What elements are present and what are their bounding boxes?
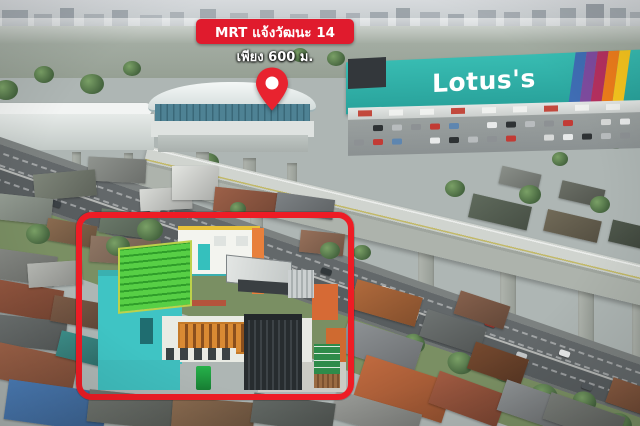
parked-car: [544, 120, 554, 126]
location-pin-icon: [253, 66, 291, 112]
shop-sign: [513, 106, 527, 112]
parked-car: [563, 120, 573, 126]
tree: [34, 66, 54, 83]
skyline-building: [396, 8, 410, 28]
lotus-sign-text: Lotus's: [432, 64, 536, 98]
shop-sign: [358, 110, 372, 116]
parked-car: [582, 133, 592, 139]
roof: [608, 220, 640, 253]
parked-car: [373, 139, 383, 145]
parked-car: [487, 122, 497, 128]
shop-sign: [482, 107, 496, 113]
parked-car: [620, 118, 630, 124]
parked-car: [525, 121, 535, 127]
skyline-building: [560, 8, 576, 28]
parking-lot: [348, 112, 640, 156]
aerial-photo: Lotus's MRT แจ้งวัฒนะ 14 เพียง 600 ม.: [0, 0, 640, 426]
roof: [543, 209, 602, 243]
parked-car: [430, 123, 440, 129]
parked-car: [468, 136, 478, 142]
parked-car: [601, 133, 611, 139]
tree: [552, 152, 568, 166]
parked-car: [601, 119, 611, 125]
roof: [27, 260, 83, 288]
station-concourse: [158, 135, 308, 152]
parked-car: [449, 123, 459, 129]
shop-sign: [420, 109, 434, 115]
parked-car: [449, 137, 459, 143]
parked-car: [506, 121, 516, 127]
distance-label: เพียง 600 ม.: [176, 46, 374, 67]
parked-car: [392, 124, 402, 130]
parked-car: [544, 134, 554, 140]
tree: [519, 185, 541, 204]
roof: [172, 166, 218, 200]
roof: [33, 169, 97, 200]
lotus-brand-stripes: [572, 50, 630, 105]
tree: [0, 80, 18, 100]
parked-car: [354, 139, 364, 145]
roof: [171, 397, 255, 426]
parked-car: [487, 136, 497, 142]
parked-car: [411, 124, 421, 130]
station-label-text: MRT แจ้งวัฒนะ 14: [215, 21, 335, 43]
station-label: MRT แจ้งวัฒนะ 14: [196, 19, 354, 44]
parked-car: [563, 134, 573, 140]
tree: [445, 180, 465, 197]
shop-sign: [575, 105, 589, 111]
tree: [590, 196, 610, 213]
roof: [0, 193, 53, 225]
shop-sign: [389, 109, 403, 115]
parked-car: [430, 137, 440, 143]
parked-car: [373, 125, 383, 131]
roof: [87, 156, 146, 183]
tree: [353, 245, 371, 260]
parked-car: [506, 135, 516, 141]
shop-sign: [451, 108, 465, 114]
parked-car: [620, 132, 630, 138]
shop-sign: [606, 104, 620, 110]
tree: [80, 74, 104, 94]
parked-car: [392, 138, 402, 144]
property-highlight-box: [76, 212, 354, 400]
shop-sign: [544, 105, 558, 111]
